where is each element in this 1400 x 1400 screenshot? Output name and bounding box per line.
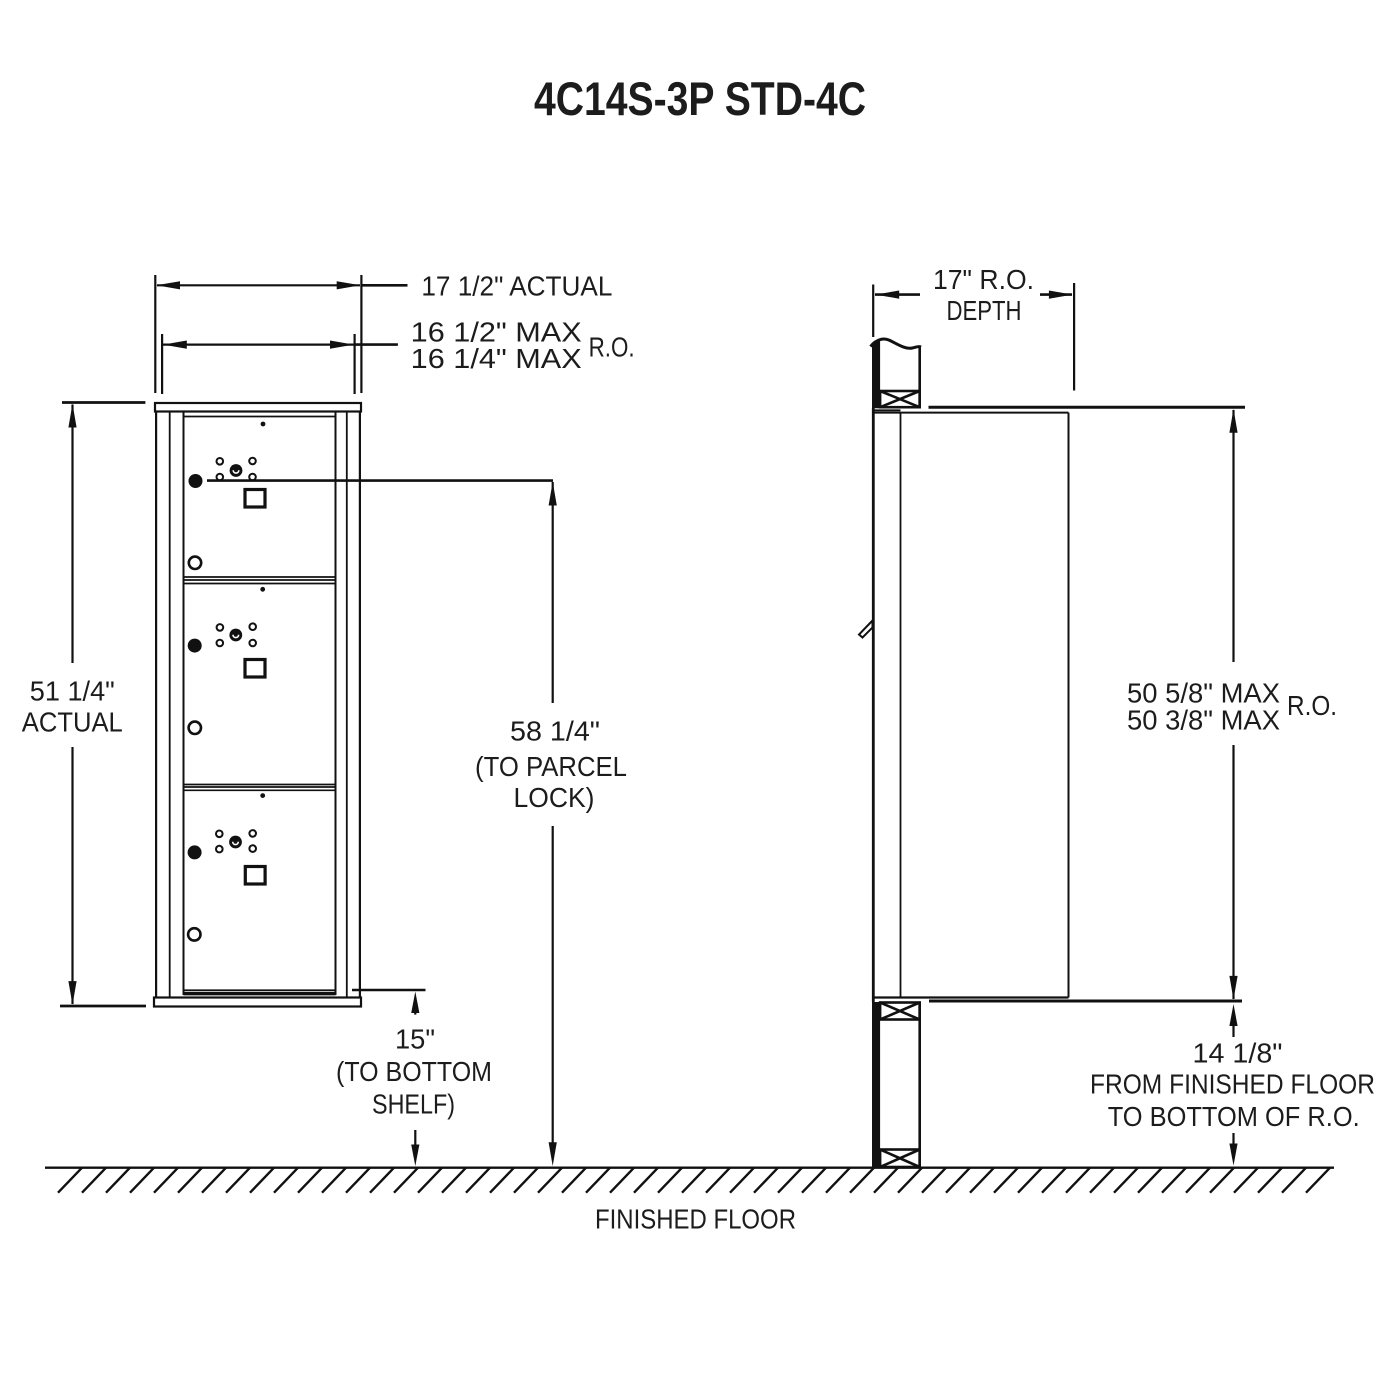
svg-text:SHELF): SHELF) <box>372 1089 455 1120</box>
svg-text:(TO BOTTOM: (TO BOTTOM <box>336 1056 492 1087</box>
svg-text:FROM FINISHED FLOOR: FROM FINISHED FLOOR <box>1090 1069 1375 1100</box>
svg-text:17 1/2" ACTUAL: 17 1/2" ACTUAL <box>421 271 612 302</box>
svg-text:15": 15" <box>395 1024 435 1055</box>
svg-text:51 1/4": 51 1/4" <box>30 676 115 707</box>
svg-text:FINISHED FLOOR: FINISHED FLOOR <box>595 1204 796 1235</box>
svg-text:17" R.O.: 17" R.O. <box>933 264 1034 295</box>
svg-text:(TO PARCEL: (TO PARCEL <box>475 751 627 782</box>
svg-text:ACTUAL: ACTUAL <box>22 707 123 738</box>
svg-text:4C14S-3P STD-4C: 4C14S-3P STD-4C <box>534 72 866 125</box>
svg-text:14 1/8": 14 1/8" <box>1193 1038 1283 1069</box>
svg-text:TO BOTTOM OF R.O.: TO BOTTOM OF R.O. <box>1108 1101 1360 1132</box>
svg-text:50 3/8" MAX: 50 3/8" MAX <box>1127 705 1280 736</box>
svg-text:DEPTH: DEPTH <box>947 295 1022 326</box>
svg-text:LOCK): LOCK) <box>514 782 595 813</box>
svg-text:R.O.: R.O. <box>589 331 635 362</box>
svg-text:16 1/4" MAX: 16 1/4" MAX <box>411 343 582 374</box>
svg-text:58 1/4": 58 1/4" <box>510 716 600 747</box>
svg-text:R.O.: R.O. <box>1287 690 1337 721</box>
